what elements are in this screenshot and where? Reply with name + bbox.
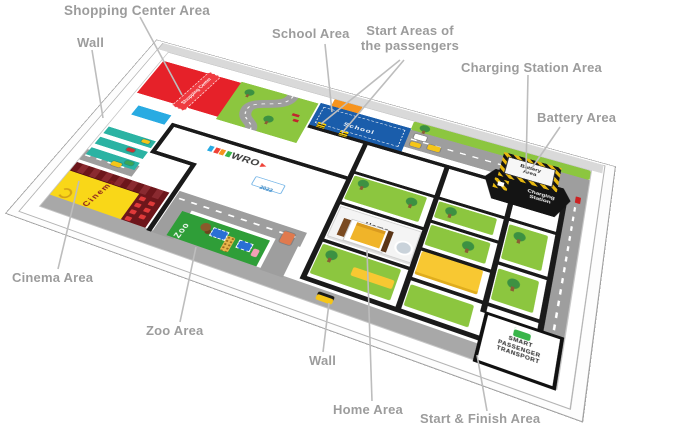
leader-line-school	[325, 44, 332, 112]
leader-line-start-finish	[477, 355, 487, 411]
leader-line-cinema	[58, 181, 79, 269]
label-zoo-area: Zoo Area	[146, 324, 203, 339]
label-cinema-area: Cinema Area	[12, 271, 93, 286]
label-charging-station-area: Charging Station Area	[461, 61, 602, 76]
leader-line-wall-top	[92, 50, 103, 118]
label-wall-bottom: Wall	[309, 354, 336, 369]
label-start-finish-area: Start & Finish Area	[420, 412, 540, 427]
label-shopping-center-area: Shopping Center Area	[64, 3, 210, 19]
leader-line-start-1	[321, 60, 400, 124]
leader-line-start-2	[342, 60, 404, 133]
leader-line-charging	[526, 75, 528, 172]
label-school-area: School Area	[272, 27, 350, 42]
leader-line-battery	[532, 127, 560, 168]
label-wall-top: Wall	[77, 36, 104, 51]
leader-line-home	[367, 250, 372, 401]
label-battery-area: Battery Area	[537, 111, 616, 126]
leader-line-shopping	[140, 17, 182, 95]
leader-line-wall-bottom	[323, 303, 329, 352]
leader-line-zoo	[180, 247, 196, 322]
label-home-area: Home Area	[333, 403, 403, 418]
label-start-areas: Start Areas of the passengers	[356, 24, 464, 54]
